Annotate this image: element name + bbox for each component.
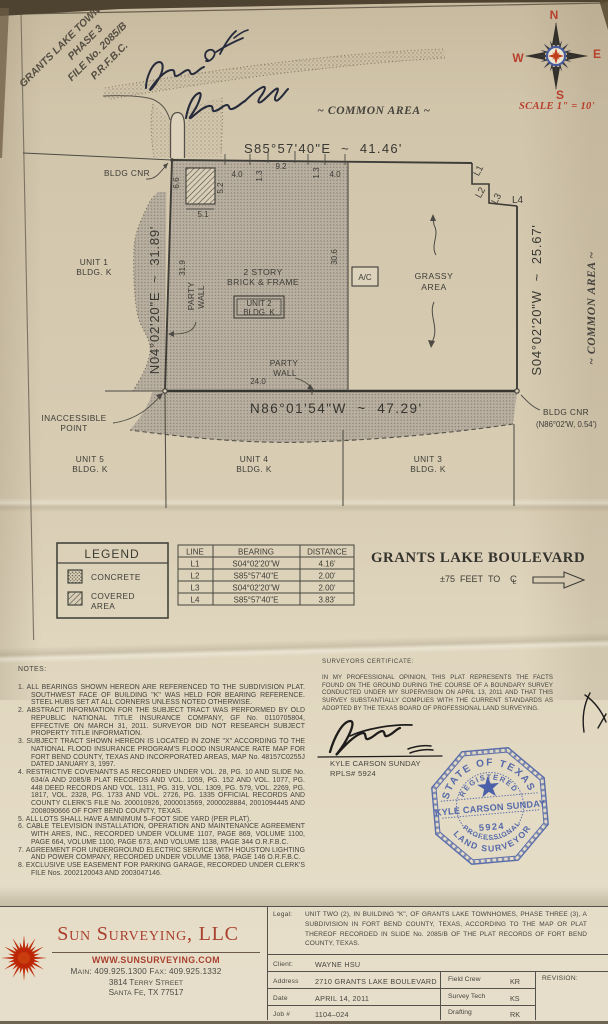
svg-text:(N86°02'W, 0.54'): (N86°02'W, 0.54'): [536, 420, 597, 429]
svg-text:N86°01'54"W ~ 47.29': N86°01'54"W ~ 47.29': [250, 401, 423, 416]
svg-text:L1: L1: [191, 560, 200, 569]
svg-text:L2: L2: [191, 572, 200, 581]
svg-text:2.00': 2.00': [318, 572, 336, 581]
svg-text:±75 FEET TO: ±75 FEET TO: [440, 574, 500, 584]
svg-text:9.2: 9.2: [275, 162, 287, 171]
svg-text:AREA: AREA: [91, 601, 115, 611]
svg-text:L4: L4: [512, 195, 524, 206]
svg-text:3.83': 3.83': [318, 596, 336, 605]
svg-text:L2: L2: [473, 186, 488, 201]
svg-text:S04°02'20"W ~ 25.67': S04°02'20"W ~ 25.67': [529, 224, 544, 375]
svg-text:BLDG CNR: BLDG CNR: [104, 168, 150, 178]
svg-text:S: S: [556, 88, 564, 102]
svg-text:BLDG. K: BLDG. K: [236, 464, 272, 474]
svg-text:6.6: 6.6: [172, 177, 181, 189]
svg-text:BLDG CNR: BLDG CNR: [543, 407, 589, 417]
svg-text:W: W: [512, 51, 524, 65]
svg-text:1.3: 1.3: [312, 167, 321, 179]
svg-text:~ COMMON AREA ~: ~ COMMON AREA ~: [586, 251, 598, 364]
svg-text:S85°57'40"E: S85°57'40"E: [234, 596, 279, 605]
svg-text:BLDG. K: BLDG. K: [243, 308, 275, 317]
svg-text:5.2: 5.2: [216, 182, 225, 194]
svg-text:S04°02'20"W: S04°02'20"W: [232, 560, 280, 569]
svg-text:L: L: [513, 579, 517, 586]
svg-text:4.0: 4.0: [329, 170, 341, 179]
svg-text:DISTANCE: DISTANCE: [307, 548, 347, 557]
svg-text:POINT: POINT: [60, 423, 87, 433]
svg-text:BRICK & FRAME: BRICK & FRAME: [227, 277, 299, 287]
svg-text:31.9: 31.9: [178, 260, 187, 276]
svg-text:GRANTS LAKE BOULEVARD: GRANTS LAKE BOULEVARD: [371, 550, 585, 566]
svg-text:KYLE CARSON SUNDAY: KYLE CARSON SUNDAY: [330, 759, 421, 768]
svg-text:UNIT 2: UNIT 2: [246, 299, 272, 308]
svg-text:RPLS# 5924: RPLS# 5924: [330, 769, 376, 778]
svg-text:A/C: A/C: [358, 273, 372, 282]
svg-text:4.0: 4.0: [231, 170, 243, 179]
svg-text:CONCRETE: CONCRETE: [91, 572, 141, 582]
svg-text:SCALE 1" = 10': SCALE 1" = 10': [519, 101, 595, 112]
svg-text:GRASSY: GRASSY: [415, 271, 454, 281]
svg-text:PARTY: PARTY: [270, 358, 299, 368]
svg-text:AREA: AREA: [421, 282, 446, 292]
svg-text:1.3: 1.3: [255, 170, 264, 182]
svg-text:N: N: [550, 8, 559, 22]
svg-text:BLDG. K: BLDG. K: [410, 464, 446, 474]
svg-text:LEGEND: LEGEND: [84, 547, 139, 561]
svg-text:COVERED: COVERED: [91, 591, 135, 601]
svg-text:5924: 5924: [478, 821, 505, 833]
svg-text:INACCESSIBLE: INACCESSIBLE: [41, 413, 106, 423]
svg-text:~ COMMON AREA ~: ~ COMMON AREA ~: [317, 105, 430, 117]
svg-text:PARTY: PARTY: [186, 282, 196, 311]
svg-text:UNIT 3: UNIT 3: [414, 454, 443, 464]
svg-text:L4: L4: [191, 596, 200, 605]
svg-text:UNIT 5: UNIT 5: [76, 454, 105, 464]
svg-text:4.16': 4.16': [318, 560, 336, 569]
svg-text:BLDG. K: BLDG. K: [76, 267, 112, 277]
svg-text:S85°57'40"E ~ 41.46': S85°57'40"E ~ 41.46': [244, 141, 403, 156]
svg-text:L1: L1: [471, 164, 486, 179]
svg-text:WALL: WALL: [273, 368, 297, 378]
svg-text:KYLE CARSON SUNDAY: KYLE CARSON SUNDAY: [434, 798, 545, 818]
svg-text:BLDG. K: BLDG. K: [72, 464, 108, 474]
svg-text:30.6: 30.6: [330, 249, 339, 265]
svg-text:L3: L3: [191, 584, 200, 593]
svg-text:S85°57'40"E: S85°57'40"E: [234, 572, 279, 581]
svg-text:N04°02'20"E ~ 31.89': N04°02'20"E ~ 31.89': [147, 226, 162, 374]
svg-text:5.1: 5.1: [197, 210, 209, 219]
svg-text:E: E: [593, 47, 601, 61]
svg-text:24.0: 24.0: [250, 377, 266, 386]
svg-text:2 STORY: 2 STORY: [243, 267, 282, 277]
svg-text:LINE: LINE: [186, 548, 204, 557]
svg-text:UNIT 4: UNIT 4: [240, 454, 269, 464]
svg-text:2.00': 2.00': [318, 584, 336, 593]
svg-text:UNIT 1: UNIT 1: [80, 257, 109, 267]
svg-text:S04°02'20"W: S04°02'20"W: [232, 584, 280, 593]
svg-text:BEARING: BEARING: [238, 548, 274, 557]
svg-text:WALL: WALL: [196, 285, 206, 309]
